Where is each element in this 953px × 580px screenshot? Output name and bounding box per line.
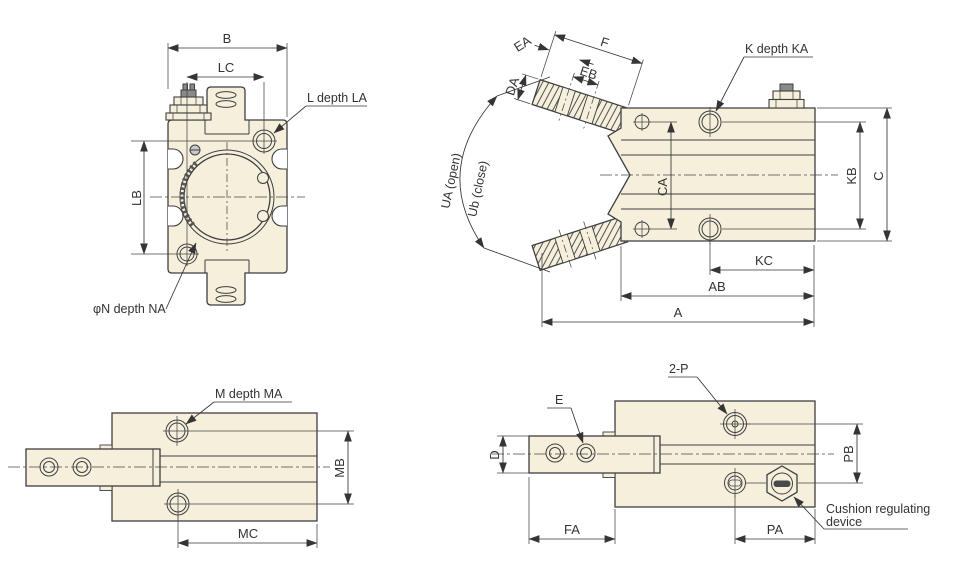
dim-label-b: B — [223, 31, 232, 46]
front-view: B LC LB L depth LA φN depth NA — [93, 31, 368, 316]
switch-groove — [272, 206, 287, 226]
callout-k-depth-ka: K depth KA — [745, 42, 809, 56]
guide-roller — [258, 173, 269, 184]
switch-groove — [168, 149, 183, 169]
guide-roller — [258, 211, 269, 222]
dim-label-mc: MC — [238, 526, 258, 541]
callout-cushion-line2: device — [826, 515, 862, 529]
dim-label-kb: KB — [844, 167, 859, 184]
finger-jaw-lower — [530, 211, 630, 277]
dim-label-lb: LB — [129, 190, 144, 206]
callout-cushion-line1: Cushion regulating — [826, 502, 930, 516]
switch-groove — [168, 206, 183, 226]
callout-phi-n-depth-na: φN depth NA — [93, 302, 166, 316]
dim-label-kc: KC — [755, 253, 773, 268]
piston-arm-2 — [529, 436, 660, 473]
dim-label-d: D — [487, 450, 502, 459]
drawing-sheet: B LC LB L depth LA φN depth NA F EA EB D… — [0, 0, 953, 580]
dim-label-f: F — [599, 34, 611, 51]
side-view-2: PB D FA PA E 2-P Cushion regulating devi… — [487, 362, 930, 544]
dim-label-pa: PA — [767, 522, 784, 537]
technical-drawing: B LC LB L depth LA φN depth NA F EA EB D… — [0, 0, 953, 580]
dim-label-fa: FA — [564, 522, 580, 537]
callout-e: E — [555, 393, 563, 407]
callout-m-depth-ma: M depth MA — [215, 387, 283, 401]
adjusting-bolt — [166, 84, 211, 120]
dim-label-ab: AB — [708, 279, 725, 294]
dim-label-ea: EA — [511, 33, 534, 55]
side-view: F EA EB DA — [438, 8, 892, 327]
dim-label-lc: LC — [218, 60, 235, 75]
dim-label-mb: MB — [332, 458, 347, 478]
angle-label-close: Ub (close) — [465, 159, 491, 218]
dim-label-a: A — [674, 305, 683, 320]
dim-label-pb: PB — [841, 445, 856, 462]
callout-2p: 2-P — [669, 362, 688, 376]
bottom-view: MB MC M depth MA — [8, 387, 354, 548]
dim-label-da: DA — [502, 75, 522, 97]
dim-label-c: C — [871, 171, 886, 180]
sensor-nut — [769, 84, 804, 108]
switch-groove — [272, 149, 287, 169]
callout-l-depth-la: L depth LA — [307, 91, 368, 105]
opening-angle: UA (open) Ub (close) — [438, 77, 550, 272]
piston-arm — [26, 449, 160, 486]
dim-label-ca: CA — [655, 178, 670, 196]
